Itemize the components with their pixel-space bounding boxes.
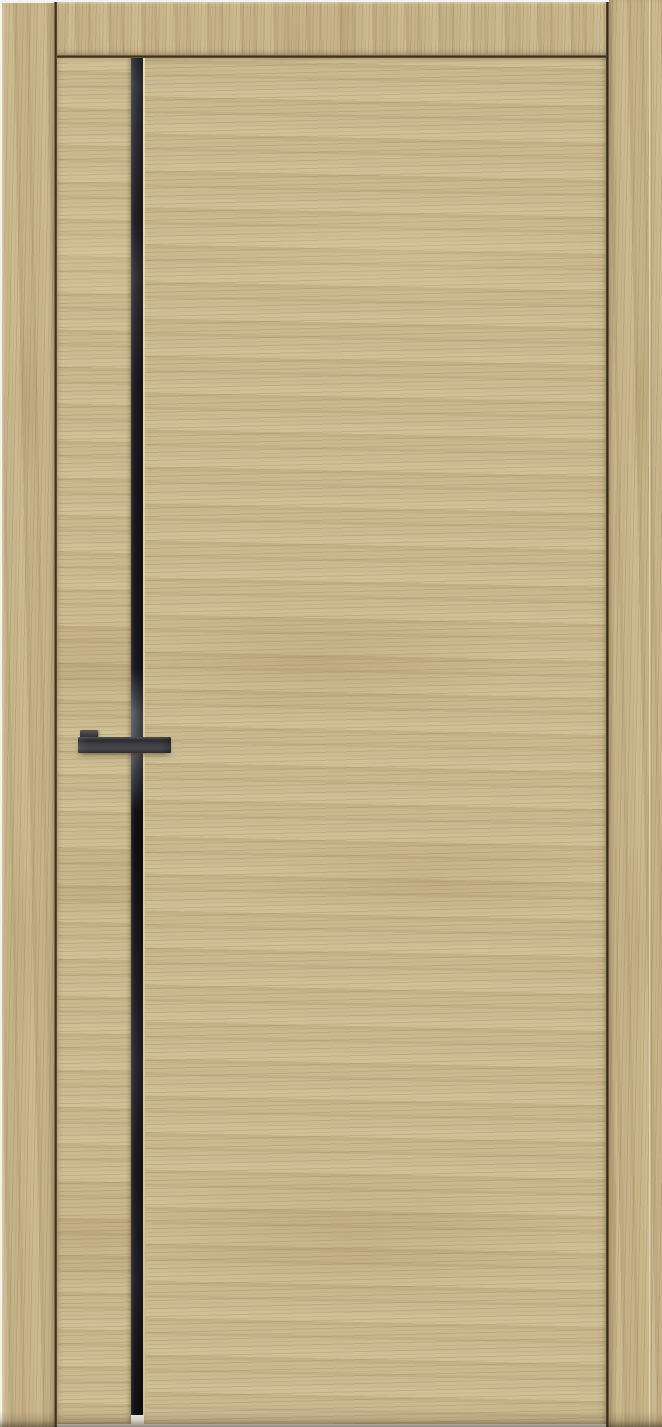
left-door-frame (2, 3, 54, 1427)
floor-shadow (0, 1411, 662, 1427)
top-door-frame (57, 2, 606, 55)
right-door-frame (609, 0, 662, 1427)
door-panel (143, 58, 606, 1424)
door-handle (78, 737, 171, 753)
door-product-photo (0, 0, 662, 1427)
right-gap-line (606, 2, 609, 1427)
right-frame-seam (649, 0, 652, 1427)
